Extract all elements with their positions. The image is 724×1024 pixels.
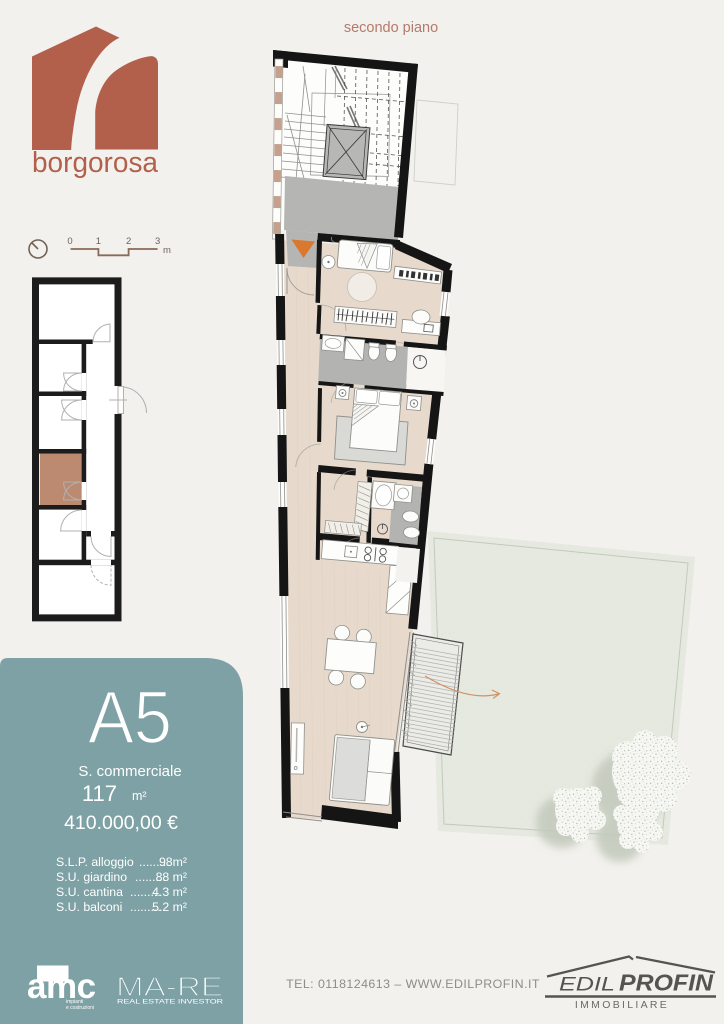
svg-text:410.000,00 €: 410.000,00 € [64,812,178,834]
svg-text:S.U. balconi: S.U. balconi [56,900,122,914]
svg-text:S.L.P. alloggio: S.L.P. alloggio [56,855,134,869]
svg-text:5.2 m²: 5.2 m² [152,900,187,914]
svg-text:88 m²: 88 m² [156,870,187,884]
svg-text:2: 2 [126,236,131,247]
svg-text:e costruzioni: e costruzioni [66,1005,94,1011]
svg-text:EDIL: EDIL [559,975,615,996]
svg-text:S. commerciale: S. commerciale [78,763,181,780]
svg-text:3: 3 [155,236,160,247]
svg-text:4.3 m²: 4.3 m² [152,885,187,899]
svg-text:PROFIN: PROFIN [619,970,713,996]
svg-text:A5: A5 [88,676,172,759]
svg-text:REAL ESTATE INVESTOR: REAL ESTATE INVESTOR [117,999,224,1006]
svg-text:117: 117 [82,781,117,806]
svg-text:secondo piano: secondo piano [344,20,438,36]
svg-text:S.U. cantina: S.U. cantina [56,885,123,899]
svg-text:TEL: 0118124613 – WWW.EDILPROF: TEL: 0118124613 – WWW.EDILPROFIN.IT [286,977,540,991]
svg-text:98m²: 98m² [159,855,187,869]
svg-text:m: m [163,245,171,256]
svg-text:MA-RE: MA-RE [116,971,223,1002]
svg-text:borgorosa: borgorosa [32,147,159,179]
svg-text:m²: m² [132,789,147,803]
svg-text:S.U. giardino: S.U. giardino [56,870,127,884]
svg-text:IMMOBILIARE: IMMOBILIARE [575,999,669,1011]
svg-text:0: 0 [67,236,72,247]
svg-text:1: 1 [96,236,101,247]
